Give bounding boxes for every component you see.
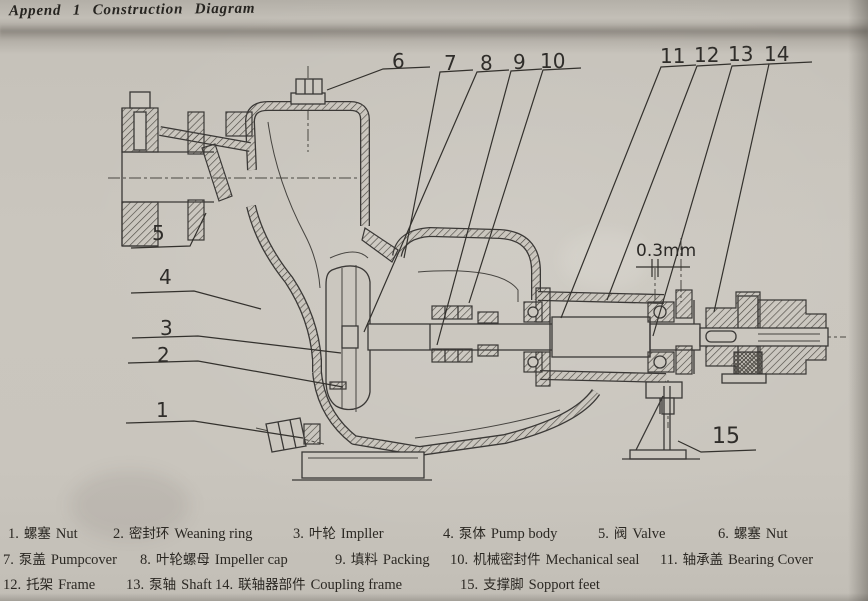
callout-6: 6 bbox=[392, 49, 405, 73]
pump-cover-wall bbox=[397, 232, 536, 300]
callout-5: 5 bbox=[152, 221, 165, 245]
gap-dimension-label: 0.3mm bbox=[636, 241, 696, 261]
legend-item-9: 9.填料Packing bbox=[335, 548, 430, 569]
legend-item-7: 7.泵盖Pumpcover bbox=[3, 548, 117, 569]
pump-body-left-wall bbox=[251, 206, 317, 372]
callout-12: 12 bbox=[694, 43, 719, 67]
legend-item-11: 11.轴承盖Bearing Cover bbox=[660, 548, 813, 569]
callout-3: 3 bbox=[160, 316, 173, 340]
callout-9: 9 bbox=[513, 50, 526, 74]
pump-shaft bbox=[368, 317, 700, 357]
drain-plug bbox=[266, 418, 320, 452]
legend-item-14: 14.联轴器部件Coupling frame bbox=[215, 573, 402, 594]
legend-item-1: 1.螺塞Nut bbox=[8, 522, 78, 543]
callout-2: 2 bbox=[157, 343, 170, 367]
legend-item-13: 13.泵轴Shaft bbox=[126, 573, 212, 594]
legend-item-6: 6.螺塞Nut bbox=[718, 522, 788, 543]
base-foot bbox=[292, 452, 432, 480]
fill-plug bbox=[291, 79, 325, 104]
callout-1: 1 bbox=[156, 398, 169, 422]
legend-item-15: 15.支撑脚Sopport feet bbox=[460, 573, 600, 594]
legend-item-2: 2.密封环Weaning ring bbox=[113, 522, 253, 543]
callout-15: 15 bbox=[712, 424, 740, 449]
callout-14: 14 bbox=[764, 42, 789, 66]
flange-bolt bbox=[130, 92, 150, 108]
callout-13: 13 bbox=[728, 42, 753, 66]
legend-item-5: 5.阀Valve bbox=[598, 522, 665, 543]
callout-7: 7 bbox=[444, 51, 457, 75]
pump-cross-section-drawing bbox=[0, 0, 868, 601]
callout-8: 8 bbox=[480, 51, 493, 75]
impeller bbox=[326, 265, 370, 412]
callout-10: 10 bbox=[540, 49, 565, 73]
legend-item-3: 3.叶轮Impller bbox=[293, 522, 384, 543]
casing-boss bbox=[226, 112, 252, 136]
legend-item-4: 4.泵体Pump body bbox=[443, 522, 557, 543]
coupling bbox=[700, 292, 828, 383]
legend-item-8: 8.叶轮螺母Impeller cap bbox=[140, 548, 288, 569]
callout-11: 11 bbox=[660, 44, 685, 68]
impeller-nut bbox=[342, 326, 358, 348]
callout-4: 4 bbox=[159, 265, 172, 289]
legend-item-12: 12.托架Frame bbox=[3, 573, 95, 594]
valve-flap bbox=[202, 144, 232, 201]
keyway bbox=[706, 331, 736, 342]
scanned-construction-diagram-page: Append 1 Construction Diagram bbox=[0, 0, 868, 601]
legend-item-10: 10.机械密封件Mechanical seal bbox=[450, 548, 639, 569]
centerlines bbox=[108, 66, 846, 444]
check-valve bbox=[188, 112, 232, 240]
